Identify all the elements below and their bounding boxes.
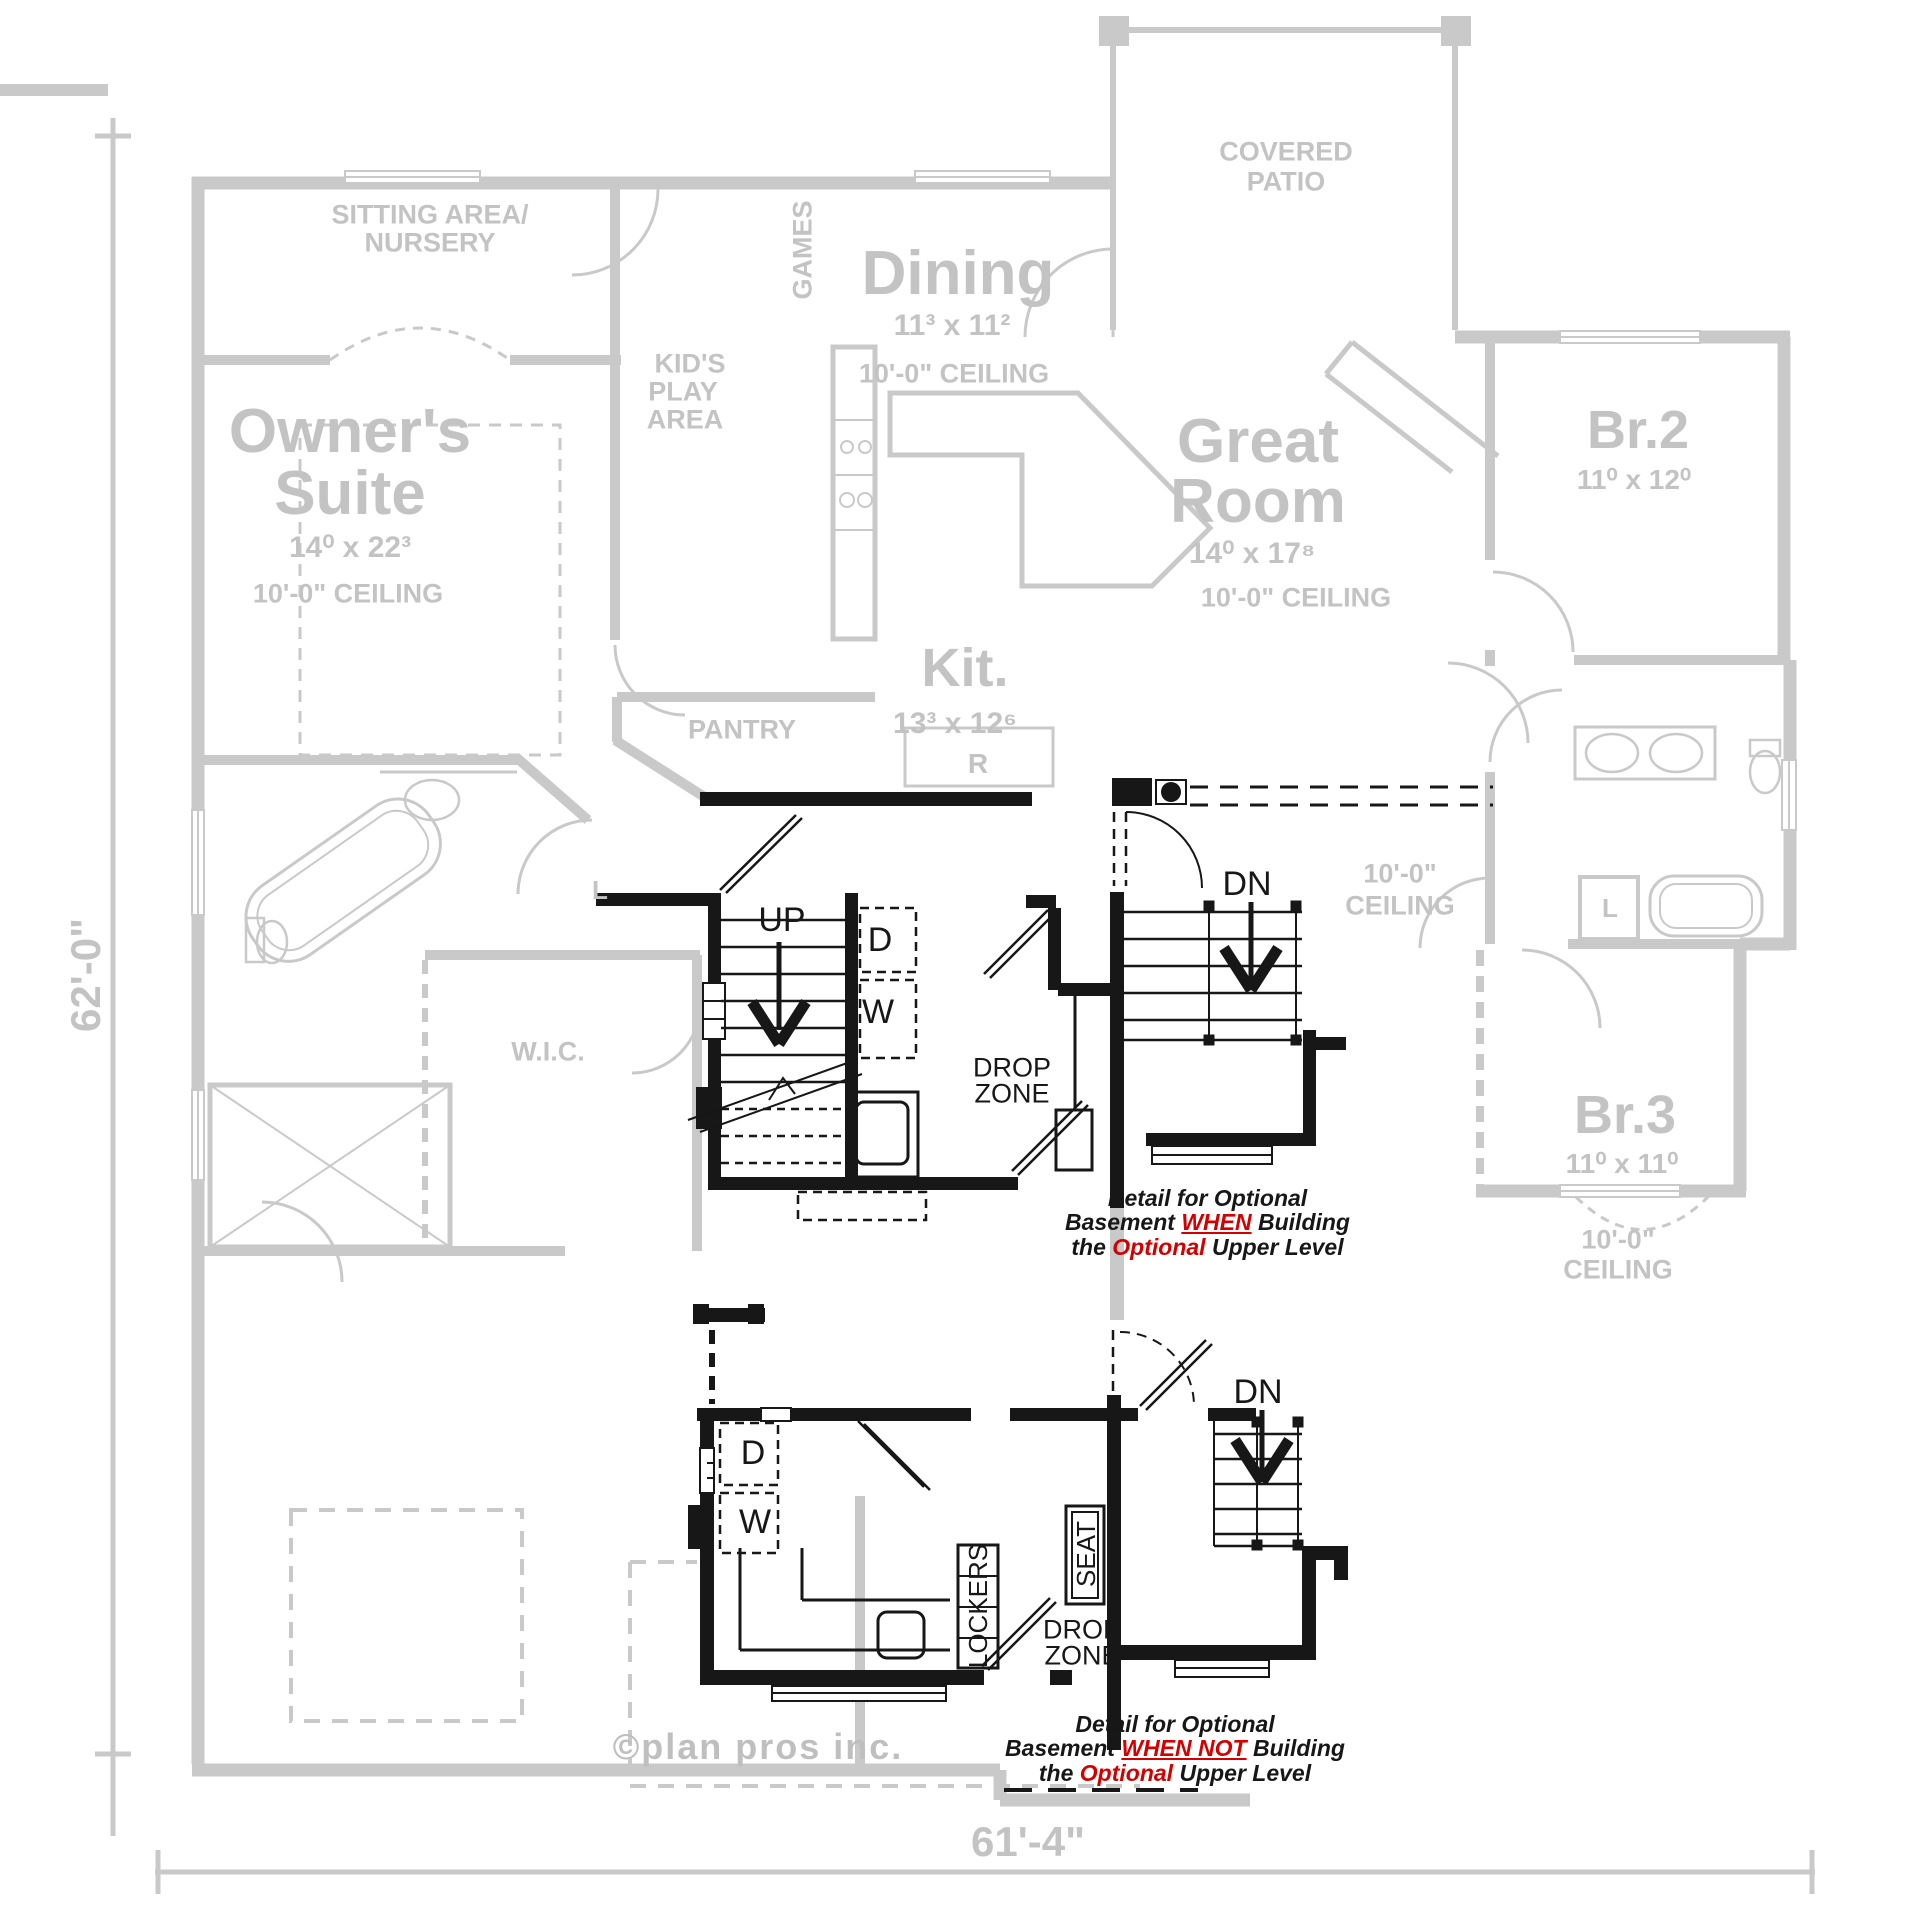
room-label-owners-suite-line1: Owner's — [229, 401, 471, 463]
linen-closet-label-1: L — [592, 877, 608, 903]
room-label-br3: Br.3 — [1574, 1088, 1676, 1142]
room-label-great-room-line2: Room — [1170, 471, 1346, 533]
dryer-label-lower-detail: D — [741, 1436, 766, 1470]
room-dims-br3: 11⁰ x 11⁰ — [1566, 1150, 1679, 1178]
drop-zone-label-lower-line2: ZONE — [1044, 1643, 1119, 1670]
washer-label-upper-detail: W — [862, 995, 894, 1029]
caption-when-building-line3: the Optional Upper Level — [1040, 1235, 1375, 1259]
stair-up-label: UP — [758, 903, 805, 937]
room-label-kids-play-line3: AREA — [647, 407, 724, 434]
room-dims-br2: 11⁰ x 12⁰ — [1577, 466, 1691, 494]
ceiling-note-dining: 10'-0" CEILING — [859, 361, 1049, 388]
ceiling-note-hall-line1: 10'-0" — [1363, 861, 1436, 888]
room-label-sitting-line2: NURSERY — [364, 230, 495, 257]
room-label-kids-play-line2: PLAY — [648, 379, 718, 406]
room-dims-great-room: 14⁰ x 17⁸ — [1189, 539, 1315, 569]
copyright-watermark: ©plan pros inc. — [613, 1729, 904, 1765]
room-dims-kitchen: 13³ x 12⁶ — [893, 709, 1017, 739]
caption-when-not-building-line1: Detail for Optional — [1000, 1712, 1350, 1736]
caption-when-building-line1: Detail for Optional — [1040, 1186, 1375, 1210]
seat-label: SEAT — [1073, 1521, 1099, 1587]
drop-zone-label-lower-line1: DROP — [1043, 1617, 1121, 1644]
detail-when-building-lines — [688, 780, 1493, 1220]
room-label-dining: Dining — [862, 243, 1055, 305]
room-label-owners-suite-line2: Suite — [274, 463, 426, 525]
room-label-kitchen: Kit. — [922, 641, 1009, 695]
caption-when-not-building-line3: the Optional Upper Level — [1000, 1761, 1350, 1785]
drop-zone-label-upper-line1: DROP — [973, 1055, 1051, 1082]
room-label-kids-play-line1: KID'S — [655, 351, 726, 378]
lockers-label: LOCKERS — [965, 1544, 991, 1668]
stair-down-label-upper-detail: DN — [1222, 867, 1271, 901]
dimension-left-total: 62'-0" — [65, 918, 107, 1032]
room-label-br2: Br.2 — [1587, 403, 1689, 457]
caption-when-not-building-line2: Basement WHEN NOT Building — [1000, 1736, 1350, 1760]
caption-when-not-building: Detail for Optional Basement WHEN NOT Bu… — [1000, 1712, 1350, 1785]
room-label-sitting-line1: SITTING AREA/ — [331, 202, 528, 229]
stair-down-label-lower-detail: DN — [1233, 1375, 1282, 1409]
linen-closet-label-2: L — [1602, 895, 1618, 921]
room-label-covered-patio-line1: COVERED — [1219, 139, 1353, 166]
detail-when-not-building-walls — [688, 1304, 1348, 1750]
ceiling-note-hall-line2: CEILING — [1345, 893, 1455, 920]
ceiling-note-br3-line2: CEILING — [1563, 1257, 1673, 1284]
floor-plan-sheet: SITTING AREA/ NURSERY Owner's Suite 14⁰ … — [0, 0, 1920, 1920]
drop-zone-label-upper-line2: ZONE — [974, 1081, 1049, 1108]
down-arrow-icon-upper-detail — [1224, 902, 1278, 990]
room-label-games: GAMES — [790, 200, 817, 299]
ceiling-note-br3-line1: 10'-0" — [1581, 1227, 1654, 1254]
room-label-wic: W.I.C. — [511, 1039, 585, 1066]
room-dims-dining: 11³ x 11² — [894, 311, 1011, 341]
ceiling-note-great-room: 10'-0" CEILING — [1201, 585, 1391, 612]
room-label-great-room-line1: Great — [1177, 411, 1339, 473]
dryer-label-upper-detail: D — [868, 923, 893, 957]
room-label-covered-patio-line2: PATIO — [1247, 169, 1326, 196]
room-dims-owners-suite: 14⁰ x 22³ — [289, 533, 411, 563]
ceiling-note-owners-suite: 10'-0" CEILING — [253, 581, 443, 608]
room-label-pantry: PANTRY — [688, 717, 796, 744]
caption-when-building-line2: Basement WHEN Building — [1040, 1210, 1375, 1234]
dimension-bottom-total: 61'-4" — [971, 1821, 1085, 1863]
caption-when-building: Detail for Optional Basement WHEN Buildi… — [1040, 1186, 1375, 1259]
washer-label-lower-detail: W — [739, 1505, 771, 1539]
fridge-symbol-label: R — [968, 750, 988, 778]
